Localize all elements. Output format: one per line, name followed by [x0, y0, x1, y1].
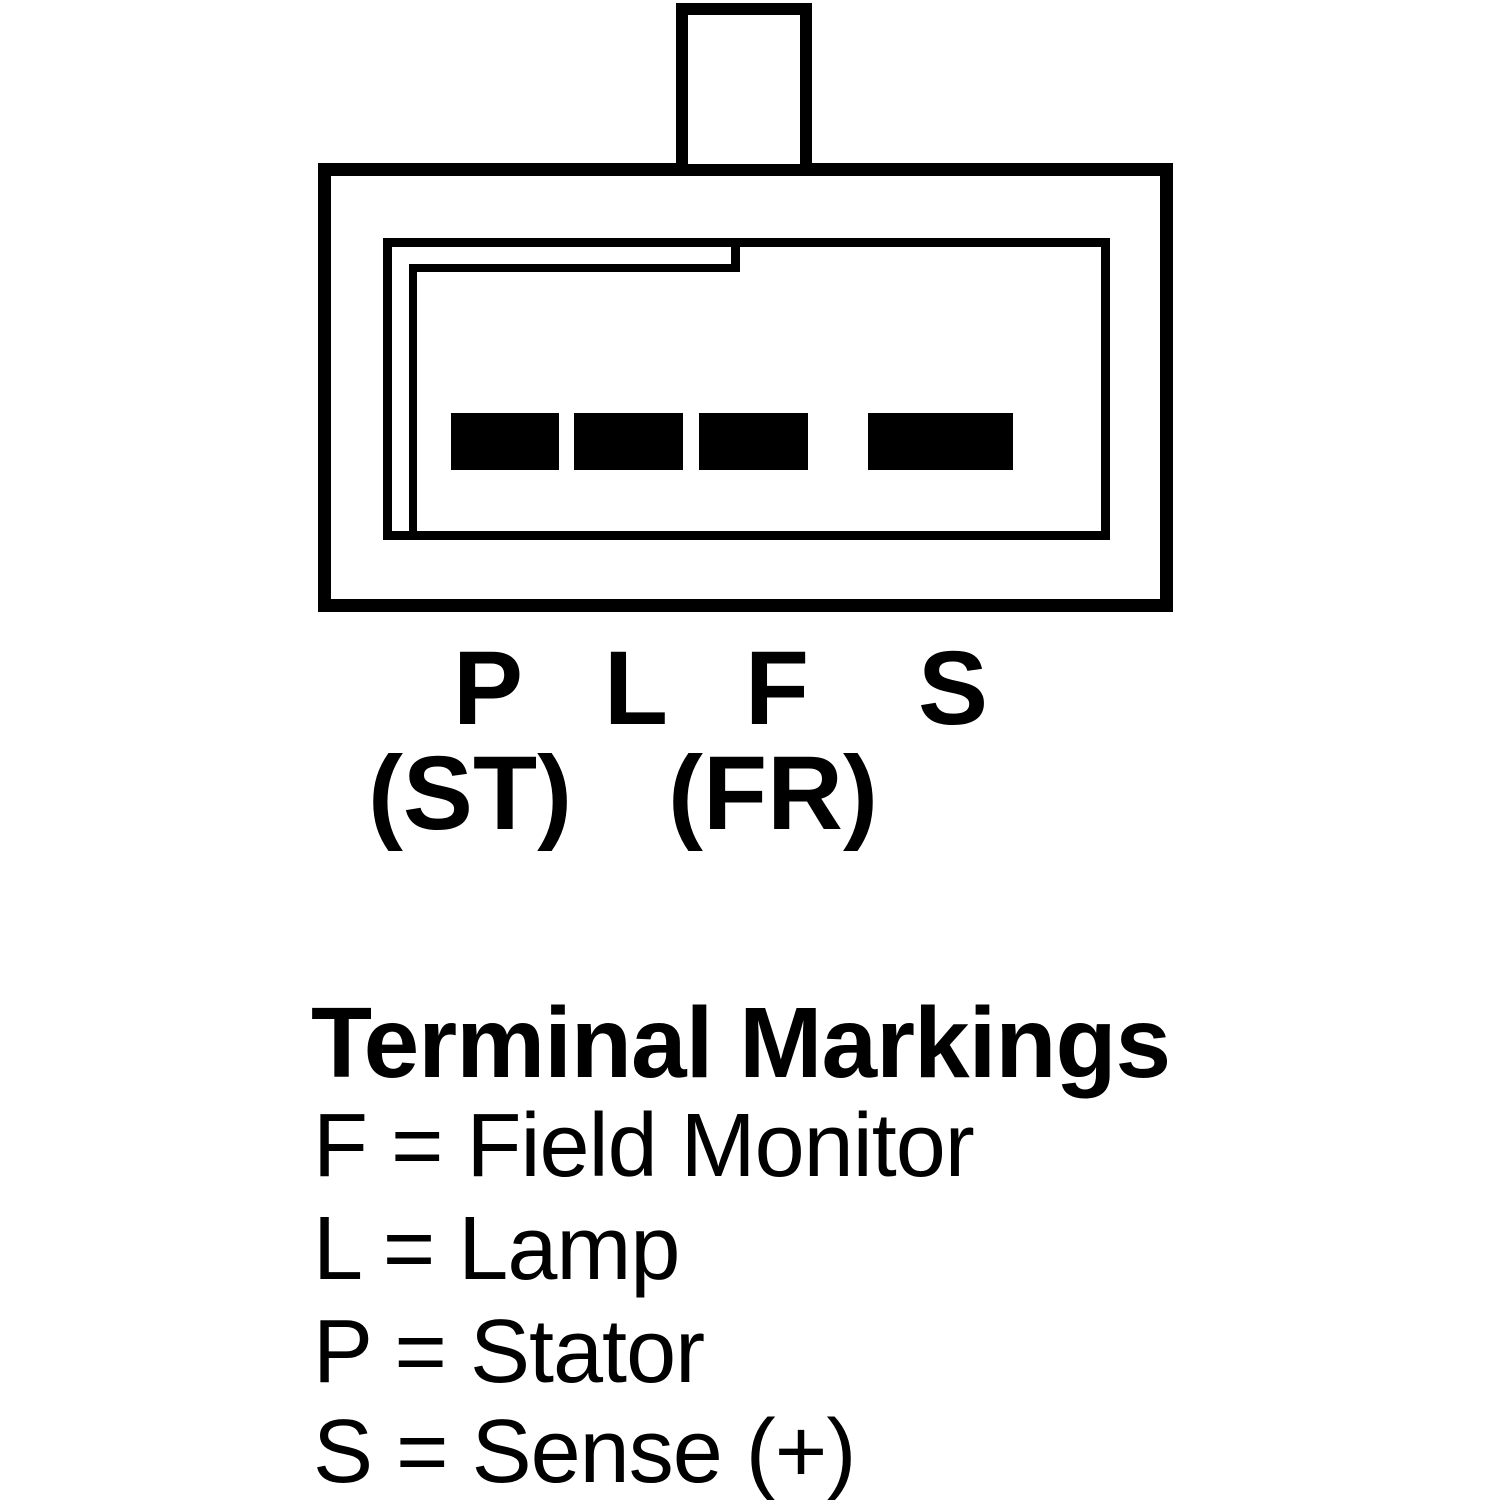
legend-entry-sense: S = Sense (+)	[313, 1407, 855, 1497]
terminal-slot-p	[451, 413, 559, 470]
pin-label-p: P	[453, 636, 523, 741]
pin-label-s: S	[918, 636, 988, 741]
legend-entry-stator: P = Stator	[313, 1307, 704, 1397]
connector-socket-outline	[383, 238, 1110, 540]
legend-entry-field-monitor: F = Field Monitor	[313, 1101, 974, 1191]
legend-entry-lamp: L = Lamp	[313, 1204, 679, 1294]
keyway-notch-step	[731, 245, 740, 272]
legend-title: Terminal Markings	[311, 993, 1170, 1093]
terminal-slot-s	[868, 413, 1013, 470]
alternator-connector-diagram: P L F S (ST) (FR) Terminal Markings F = …	[0, 0, 1500, 1500]
pin-alt-label-fr: (FR)	[668, 741, 878, 846]
pin-label-f: F	[745, 636, 809, 741]
terminal-slot-f	[699, 413, 808, 470]
pin-alt-label-st: (ST)	[368, 741, 572, 846]
connector-locking-tab	[676, 3, 812, 164]
pin-label-l: L	[604, 636, 668, 741]
terminal-slot-l	[574, 413, 683, 470]
keyway-line-top	[409, 264, 740, 272]
keyway-line-left	[409, 267, 417, 533]
